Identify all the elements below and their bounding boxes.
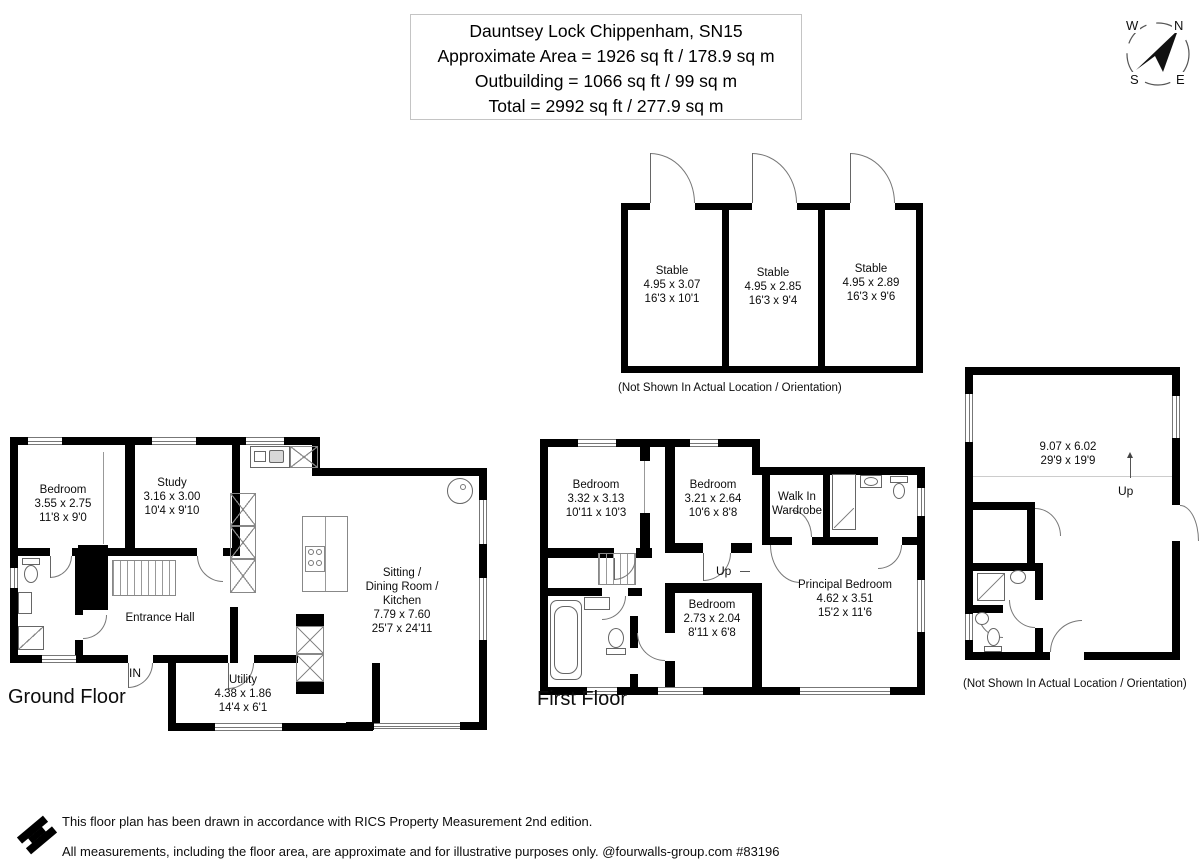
sink-bowl — [864, 477, 878, 486]
sink — [584, 597, 610, 610]
door-leaf — [650, 153, 651, 203]
bedroom1-label: Bedroom 3.32 x 3.13 10'11 x 10'3 — [546, 478, 646, 520]
window — [800, 687, 890, 695]
bedroom-label: Bedroom 3.55 x 2.75 11'8 x 9'0 — [13, 483, 113, 525]
sink — [975, 612, 989, 625]
bath-inner — [554, 606, 578, 674]
footer-disclaimer-line: All measurements, including the floor ar… — [62, 844, 780, 859]
cabinet — [296, 626, 324, 654]
window — [215, 723, 282, 731]
wall — [630, 674, 638, 687]
wall — [636, 548, 652, 558]
total-area: Total = 2992 sq ft / 277.9 sq m — [411, 94, 801, 119]
door-arc — [878, 545, 902, 569]
window — [917, 488, 925, 516]
entrance-in-label: IN — [120, 666, 150, 680]
compass-south: S — [1128, 72, 1141, 87]
window — [690, 439, 718, 447]
fourwalls-logo-icon — [8, 806, 66, 864]
island-divider — [325, 517, 326, 591]
shower — [977, 573, 1005, 601]
wall — [75, 640, 83, 655]
window — [965, 394, 973, 442]
utility-label: Utility 4.38 x 1.86 14'4 x 6'1 — [183, 673, 303, 715]
door-arc — [752, 153, 797, 203]
stairs — [112, 560, 176, 596]
wall — [10, 548, 50, 556]
bedroom3-label: Bedroom 2.73 x 2.04 8'11 x 6'8 — [662, 598, 762, 640]
title-block: Dauntsey Lock Chippenham, SN15 Approxima… — [410, 14, 802, 120]
outbuilding-dims-label: 9.07 x 6.02 29'9 x 19'9 — [998, 440, 1138, 468]
wall — [230, 607, 238, 663]
toilet-cistern — [606, 648, 626, 655]
wall — [168, 663, 176, 723]
wall — [973, 502, 1035, 510]
approximate-area: Approximate Area = 1926 sq ft / 178.9 sq… — [411, 44, 801, 69]
door-gap — [1050, 652, 1084, 660]
door-arc — [637, 633, 665, 661]
window — [658, 687, 703, 695]
door-arc — [197, 556, 223, 582]
toilet — [893, 483, 905, 499]
door-leaf — [752, 153, 753, 203]
sink-bowl — [254, 451, 266, 462]
wall — [830, 537, 878, 545]
up-tick — [740, 571, 750, 572]
study-label: Study 3.16 x 3.00 10'4 x 9'10 — [122, 476, 222, 518]
toilet-cistern — [22, 558, 40, 565]
ground-floor-title: Ground Floor — [8, 686, 126, 709]
walk-in-wardrobe-label: Walk In Wardrobe — [757, 490, 837, 518]
compass-west: W — [1124, 18, 1140, 33]
cabinet — [230, 493, 256, 526]
wall — [628, 588, 642, 596]
door-gap — [1172, 505, 1180, 541]
door-arc — [1009, 600, 1035, 628]
sink — [1010, 570, 1026, 584]
wall — [346, 722, 374, 730]
wall — [540, 588, 602, 596]
floor-plan-page: Dauntsey Lock Chippenham, SN15 Approxima… — [0, 0, 1200, 867]
window — [10, 568, 18, 588]
door-arc — [1050, 620, 1082, 652]
window — [1172, 396, 1180, 438]
footer-rics-line: This floor plan has been drawn in accord… — [62, 814, 592, 829]
wall — [902, 537, 925, 545]
window — [28, 437, 62, 445]
door-arc — [50, 556, 72, 578]
door-arc — [1035, 508, 1061, 536]
window — [42, 655, 76, 663]
door-arc — [850, 153, 895, 203]
wall — [621, 366, 923, 373]
door-gap — [752, 203, 797, 210]
stove — [447, 478, 473, 504]
compass: W N S E — [1116, 8, 1200, 92]
up-label: Up — [1118, 484, 1133, 498]
window — [479, 500, 487, 544]
sliding-door — [374, 723, 460, 729]
sink — [18, 592, 32, 614]
wall — [665, 661, 675, 687]
cabinet — [230, 526, 256, 559]
wall — [965, 367, 1180, 375]
hob-burner — [308, 549, 314, 555]
wall — [973, 605, 1003, 613]
window — [246, 437, 284, 445]
compass-north: N — [1172, 18, 1185, 33]
door-leaf — [614, 558, 615, 580]
wall — [254, 655, 298, 663]
door-arc — [1180, 505, 1199, 541]
door-leaf — [703, 553, 704, 581]
toilet — [24, 565, 38, 583]
toilet — [987, 628, 1000, 646]
stable-2-label: Stable 4.95 x 2.85 16'3 x 9'4 — [723, 266, 823, 308]
sink-bowl — [269, 450, 284, 463]
wall — [640, 447, 650, 461]
outbuilding-area: Outbuilding = 1066 sq ft / 99 sq m — [411, 69, 801, 94]
toilet — [608, 628, 624, 648]
compass-east: E — [1174, 72, 1187, 87]
wall — [665, 583, 755, 593]
chimney-breast — [78, 545, 108, 610]
stable-1-label: Stable 4.95 x 3.07 16'3 x 10'1 — [622, 264, 722, 306]
cabinet — [230, 559, 256, 593]
window — [965, 614, 973, 640]
wall — [731, 543, 752, 553]
wall — [665, 543, 703, 553]
principal-bedroom-label: Principal Bedroom 4.62 x 3.51 15'2 x 11'… — [775, 578, 915, 620]
wall — [540, 439, 760, 447]
property-address: Dauntsey Lock Chippenham, SN15 — [411, 19, 801, 44]
wall — [973, 563, 1035, 571]
wall — [630, 616, 638, 648]
wall — [762, 537, 792, 545]
door-arc — [650, 153, 695, 203]
up-arrow-head — [1127, 452, 1133, 458]
wall — [135, 548, 197, 556]
door-gap — [650, 203, 695, 210]
window — [479, 578, 487, 640]
shower-drain — [834, 508, 854, 528]
bedroom2-label: Bedroom 3.21 x 2.64 10'6 x 8'8 — [663, 478, 763, 520]
window — [152, 437, 196, 445]
sitting-room-label: Sitting / Dining Room / Kitchen 7.79 x 7… — [342, 566, 462, 636]
door-leaf — [50, 556, 51, 578]
wall — [312, 468, 487, 476]
toilet-cistern — [890, 476, 908, 483]
toilet-cistern — [984, 646, 1002, 652]
first-floor-title: First Floor — [537, 688, 627, 711]
hob-burner — [316, 549, 322, 555]
stable-3-label: Stable 4.95 x 2.89 16'3 x 9'6 — [821, 262, 921, 304]
wall — [372, 663, 380, 723]
entrance-hall-label: Entrance Hall — [100, 611, 220, 625]
wall — [1027, 510, 1035, 563]
wall — [296, 614, 324, 626]
window — [917, 580, 925, 632]
wall — [460, 722, 487, 730]
outbuilding-note: (Not Shown In Actual Location / Orientat… — [963, 678, 1187, 690]
floor-divide-line — [973, 476, 1172, 477]
door-gap — [850, 203, 895, 210]
up-label: Up — [716, 564, 731, 578]
up-arrow-line — [1130, 458, 1131, 478]
cabinet — [290, 446, 318, 468]
wall — [1035, 563, 1043, 600]
window — [578, 439, 616, 447]
wall — [1035, 628, 1043, 652]
hob-burner — [308, 560, 314, 566]
wall — [153, 655, 228, 663]
stables-note: (Not Shown In Actual Location / Orientat… — [618, 382, 842, 394]
shower — [18, 626, 44, 650]
door-leaf — [850, 153, 851, 203]
stove-flue — [460, 484, 466, 490]
hob-burner — [316, 560, 322, 566]
